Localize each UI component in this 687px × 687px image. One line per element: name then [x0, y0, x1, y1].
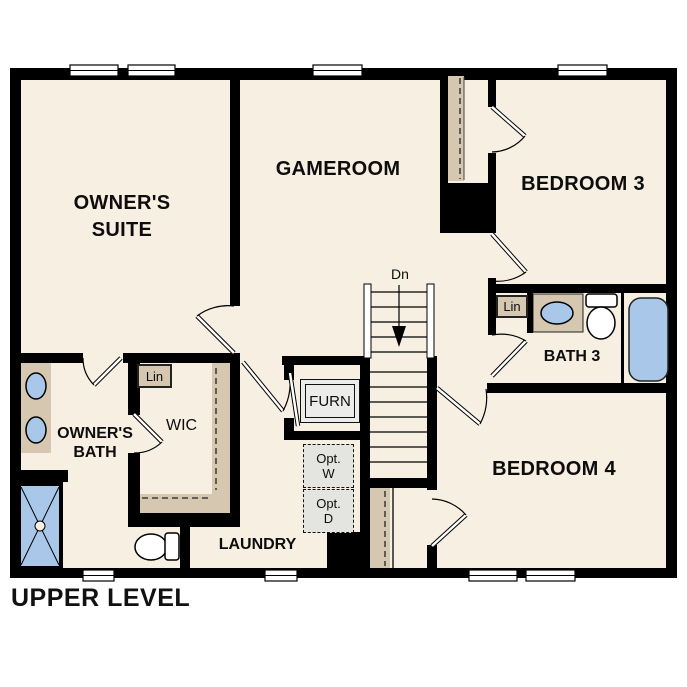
tub-partition-wall	[621, 293, 624, 383]
owners-suite-line1: OWNER'S	[37, 190, 207, 217]
chase-block	[440, 183, 496, 233]
shower-drain	[35, 521, 45, 531]
wic-label: WIC	[166, 417, 197, 435]
optional-washer-box: Opt. W	[303, 444, 354, 488]
wall	[360, 478, 437, 488]
sink	[26, 373, 46, 399]
stair-rail-left	[364, 284, 371, 358]
wall	[488, 80, 496, 107]
laundry-label: LAUNDRY	[205, 536, 310, 554]
wall	[488, 153, 496, 183]
stair-rail-right	[427, 284, 434, 358]
toilet-tank	[586, 294, 617, 307]
owners-bath-line2: BATH	[45, 443, 145, 462]
wall	[282, 356, 370, 365]
bath3-label: BATH 3	[527, 348, 617, 366]
linen-wic-label: Lin	[146, 369, 163, 384]
optional-dryer-box: Opt. D	[303, 489, 354, 533]
wall	[21, 353, 83, 363]
wall	[327, 532, 370, 568]
floor-plan: OWNER'S SUITE GAMEROOM BEDROOM 3 BEDROOM…	[0, 0, 687, 687]
gameroom-label: GAMEROOM	[253, 158, 423, 181]
owners-bath-label: OWNER'S BATH	[45, 424, 145, 462]
bathtub	[629, 298, 668, 381]
wall	[230, 353, 240, 527]
linen-closet-wic: Lin	[137, 364, 172, 388]
owners-suite-line2: SUITE	[37, 217, 207, 244]
bedroom4-closet-shelf	[370, 488, 390, 568]
opt-dryer-line2: D	[324, 511, 333, 526]
bedroom4-label: BEDROOM 4	[469, 458, 639, 481]
wic-shelf-right	[212, 361, 230, 513]
wall	[284, 431, 370, 440]
wall	[123, 353, 240, 363]
opt-washer-line2: W	[322, 466, 334, 481]
owners-bath-line1: OWNER'S	[45, 424, 145, 443]
furnace-inner-box: FURN	[305, 384, 355, 418]
opt-washer-line1: Opt.	[316, 451, 341, 466]
stairs-down-label: Dn	[380, 266, 420, 282]
sink	[541, 302, 573, 324]
linen-closet-bath3: Lin	[496, 295, 528, 318]
furnace-label: FURN	[309, 393, 351, 410]
owners-suite-label: OWNER'S SUITE	[37, 190, 207, 244]
linen-bath3-label: Lin	[503, 299, 520, 314]
wall	[128, 453, 140, 515]
wall	[427, 356, 437, 490]
toilet-tank	[165, 533, 179, 560]
wall	[487, 383, 666, 393]
bedroom3-closet-shelf	[448, 76, 464, 181]
page-title: UPPER LEVEL	[11, 584, 190, 613]
sink	[26, 417, 46, 443]
opt-dryer-line1: Opt.	[316, 496, 341, 511]
wall	[440, 80, 448, 183]
wic-shelf-bottom	[138, 494, 230, 513]
furnace-closet-box: FURN	[300, 379, 360, 423]
toilet-bowl	[587, 307, 615, 339]
wall	[488, 284, 666, 293]
wall	[488, 293, 496, 335]
bedroom3-label: BEDROOM 3	[498, 173, 668, 196]
toilet-bowl	[135, 534, 167, 560]
wall	[128, 513, 240, 527]
wall	[21, 470, 68, 482]
wall	[180, 527, 190, 568]
wall	[427, 545, 437, 568]
wall	[230, 80, 240, 306]
